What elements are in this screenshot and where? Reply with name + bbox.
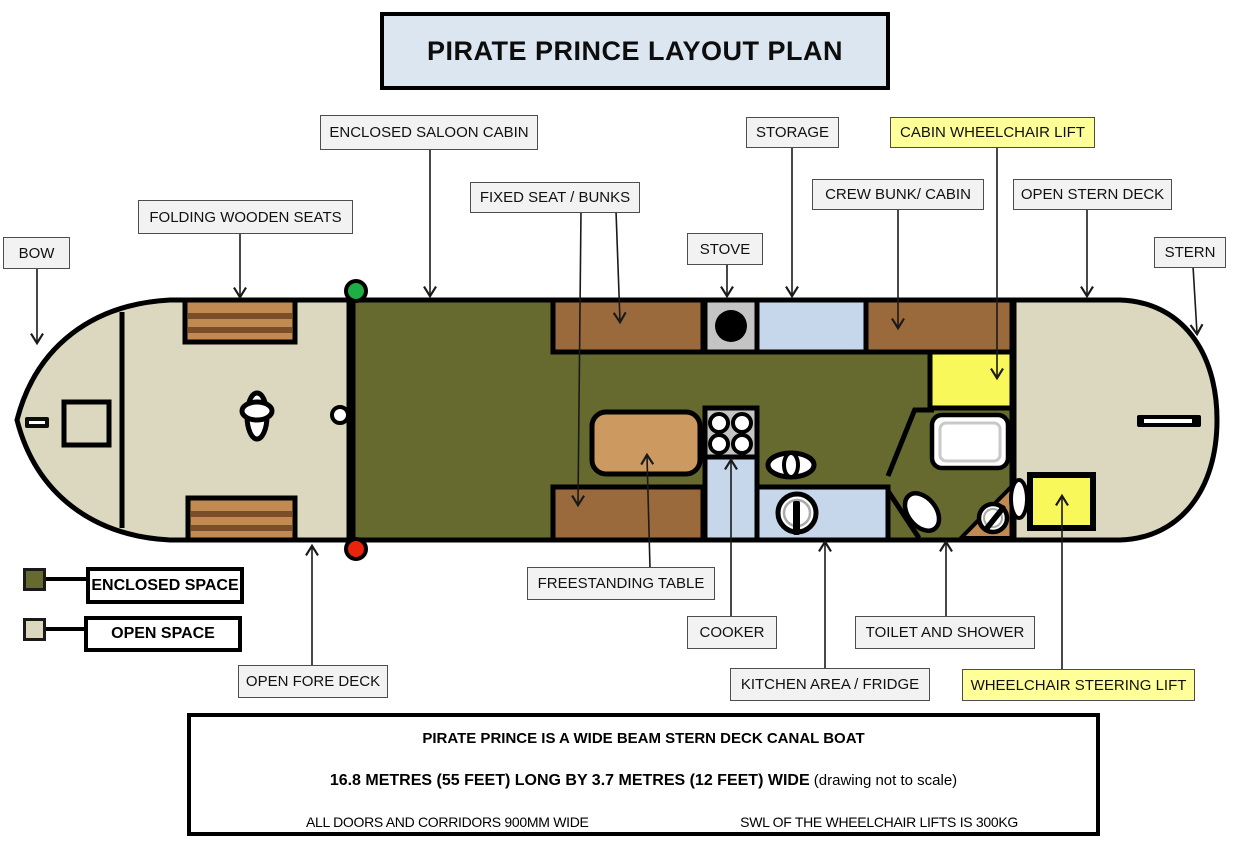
label-crew-bunk-cabin: CREW BUNK/ CABIN: [812, 179, 984, 210]
legend-connector: [46, 577, 86, 581]
seat-slat: [191, 511, 292, 517]
label-wheelchair-steering-lift: WHEELCHAIR STEERING LIFT: [962, 669, 1195, 701]
arrow-stern: [1193, 266, 1197, 333]
info-doors-note: ALL DOORS AND CORRIDORS 900MM WIDE: [306, 814, 589, 830]
info-scale-note: (drawing not to scale): [810, 772, 958, 789]
info-line-2: 16.8 METRES (55 FEET) LONG BY 3.7 METRES…: [191, 772, 1096, 790]
seat-slat: [191, 525, 292, 531]
bow-locker: [64, 402, 109, 445]
label-enclosed-saloon-cabin: ENCLOSED SALOON CABIN: [320, 115, 538, 150]
label-fixed-seat-bunks: FIXED SEAT / BUNKS: [470, 182, 640, 213]
label-cooker: COOKER: [687, 616, 777, 649]
folding-wooden-seat-bottom: [188, 498, 295, 540]
freestanding-table-fixture: [592, 412, 700, 474]
stern-door: [1011, 480, 1027, 518]
label-freestanding-table: FREESTANDING TABLE: [527, 567, 715, 600]
wash-basin: [768, 453, 814, 477]
legend-swatch-enclosed: [23, 568, 46, 591]
label-folding-wooden-seats: FOLDING WOODEN SEATS: [138, 200, 353, 234]
info-box: PIRATE PRINCE IS A WIDE BEAM STERN DECK …: [187, 713, 1100, 836]
label-storage: STORAGE: [746, 117, 839, 148]
cabin-wheelchair-lift-fixture: [930, 352, 1013, 408]
label-cabin-wheelchair-lift: CABIN WHEELCHAIR LIFT: [890, 117, 1095, 148]
bow-cleat: [25, 417, 49, 428]
fixed-seat-bunk-bottom: [553, 487, 703, 540]
fixed-seat-bunk-top: [553, 300, 703, 352]
layout-plan-page: PIRATE PRINCE LAYOUT PLAN BOW FOLDING WO…: [0, 0, 1241, 846]
stove-burner: [715, 310, 747, 342]
legend-open-space: OPEN SPACE: [84, 616, 242, 652]
tiller: [1137, 415, 1201, 427]
label-kitchen-area-fridge: KITCHEN AREA / FRIDGE: [730, 668, 930, 701]
folding-wooden-seat-top: [185, 300, 295, 342]
kitchen-tap: [793, 501, 800, 535]
label-toilet-and-shower: TOILET AND SHOWER: [855, 616, 1035, 649]
info-line-1: PIRATE PRINCE IS A WIDE BEAM STERN DECK …: [191, 730, 1096, 747]
info-line-3: ALL DOORS AND CORRIDORS 900MM WIDE SWL O…: [191, 814, 1096, 830]
cooker-fixture: [705, 408, 757, 457]
seat-slat: [188, 313, 292, 319]
info-swl-note: SWL OF THE WHEELCHAIR LIFTS IS 300KG: [740, 814, 1018, 830]
nav-light-green: [346, 281, 366, 301]
fore-door-knob: [332, 407, 348, 423]
info-dimensions: 16.8 METRES (55 FEET) LONG BY 3.7 METRES…: [330, 772, 810, 789]
storage-area: [757, 300, 866, 352]
legend-enclosed-space: ENCLOSED SPACE: [86, 567, 244, 604]
page-title: PIRATE PRINCE LAYOUT PLAN: [380, 12, 890, 90]
seat-slat: [188, 327, 292, 333]
label-open-stern-deck: OPEN STERN DECK: [1013, 179, 1172, 210]
legend-swatch-open: [23, 618, 46, 641]
kitchen-sink: [778, 494, 816, 535]
label-bow: BOW: [3, 237, 70, 269]
crew-bunk: [866, 300, 1013, 352]
stove-fixture: [705, 300, 757, 352]
nav-light-red: [346, 539, 366, 559]
label-open-fore-deck: OPEN FORE DECK: [238, 665, 388, 698]
label-stern: STERN: [1154, 237, 1226, 268]
shower-tray: [932, 415, 1008, 468]
label-stove: STOVE: [687, 233, 763, 265]
legend-connector: [46, 627, 84, 631]
